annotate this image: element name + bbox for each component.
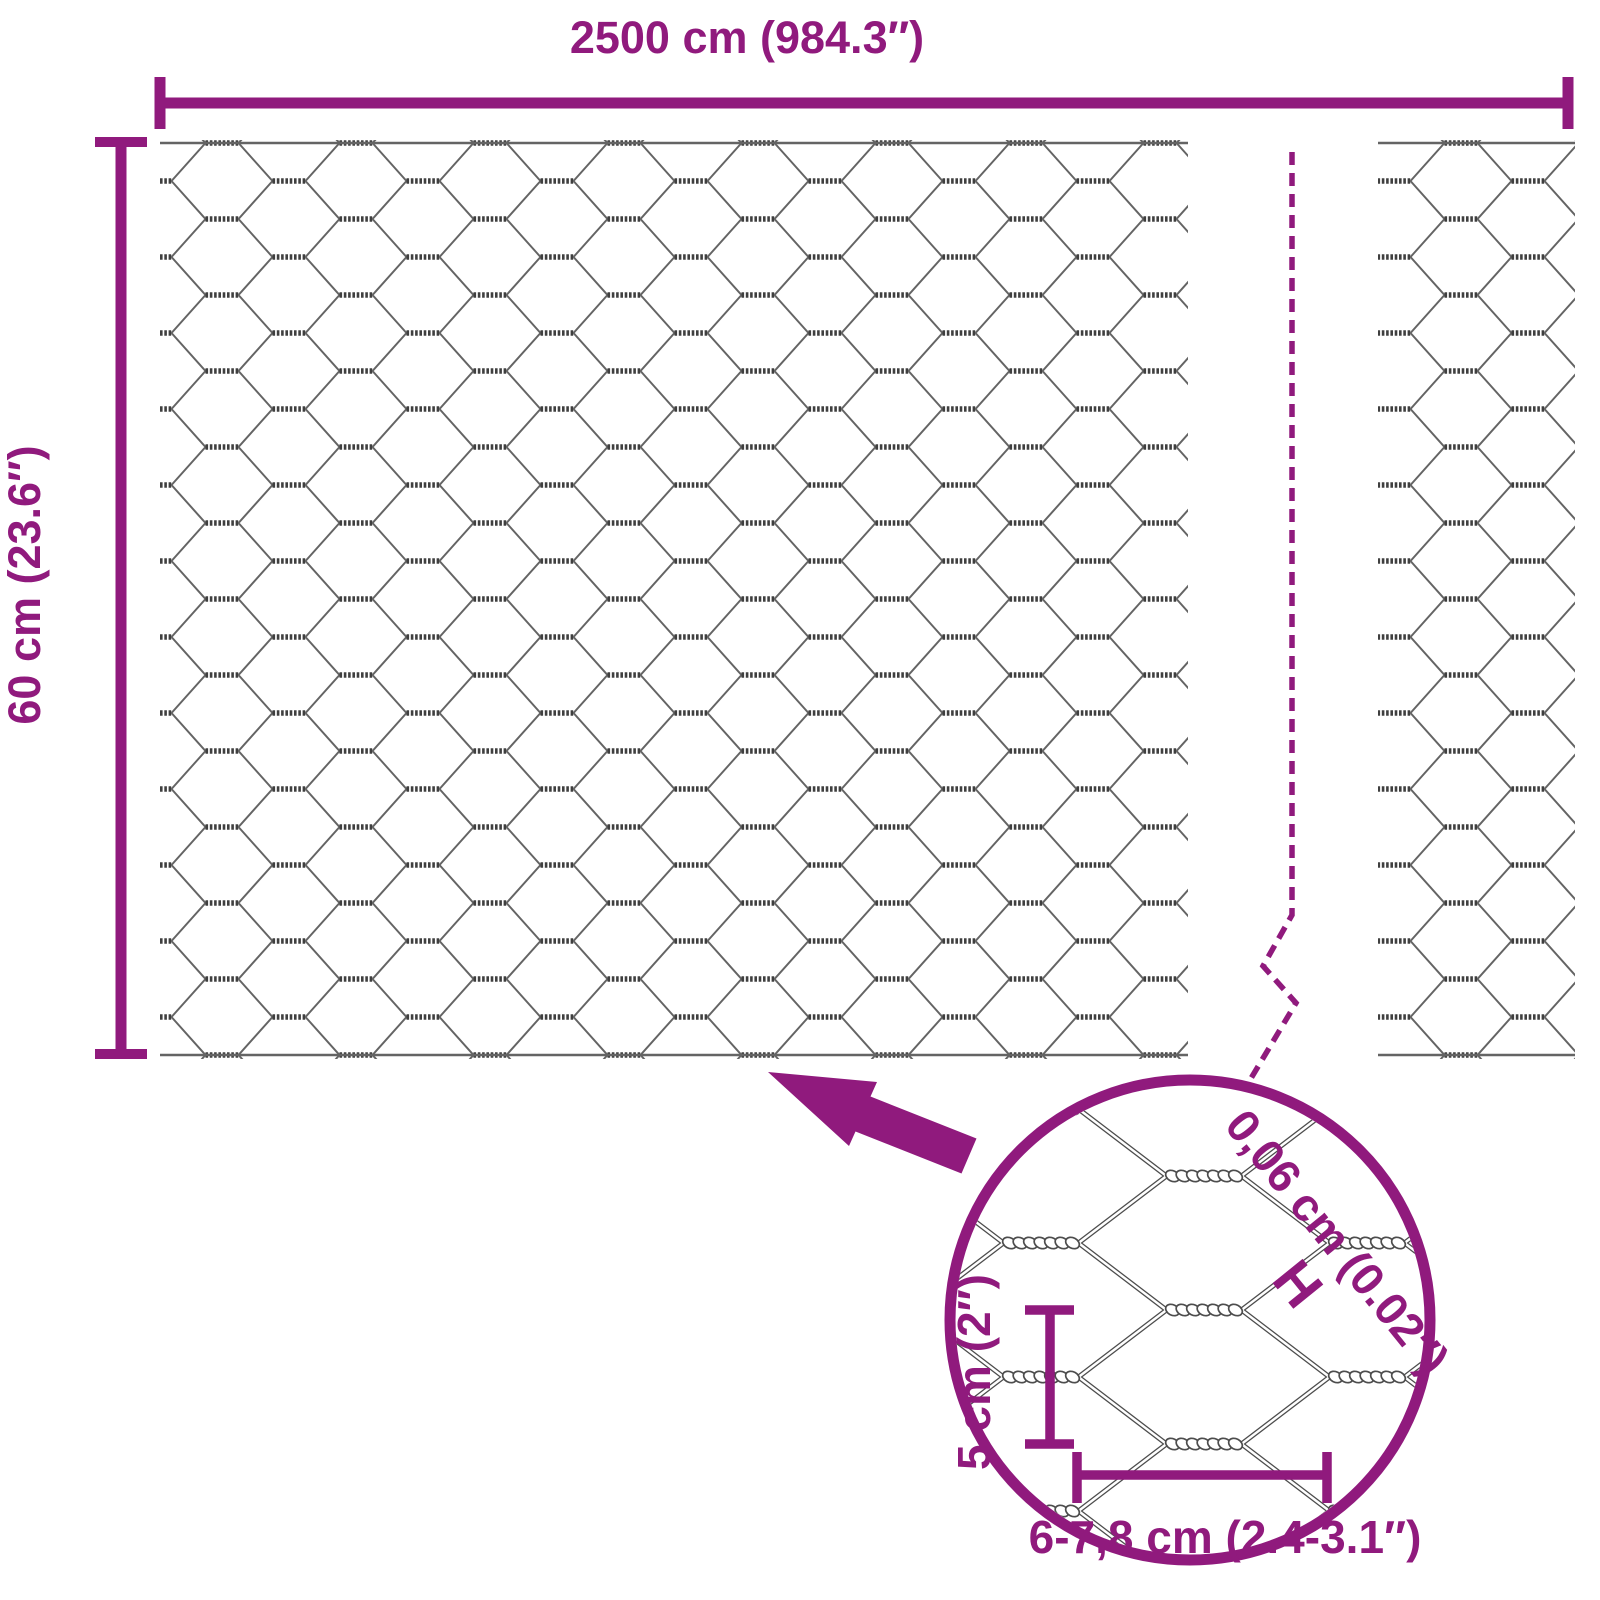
magnified-mesh: [956, 1086, 1425, 1555]
length-break-line: [1250, 152, 1296, 1080]
height-dimension: 60 cm (23.6″): [0, 142, 147, 1055]
mesh-height-label: 5 cm (2″): [948, 1274, 1000, 1470]
product-dimension-diagram: 2500 cm (984.3″) 60 cm (23.6″) 5 cm (2″)…: [0, 0, 1600, 1600]
hex-mesh-fill: [160, 140, 1188, 1059]
magnifier-detail: 5 cm (2″) 6-7,8 cm (2.4-3.1″) H 0,06 cm …: [948, 1080, 1460, 1563]
zoom-arrow: [768, 1072, 977, 1174]
mesh-panel-main: [160, 140, 1188, 1059]
hex-mesh-fill: [1378, 140, 1575, 1059]
height-dimension-label: 60 cm (23.6″): [0, 445, 50, 724]
width-dimension-label: 2500 cm (984.3″): [570, 12, 924, 63]
width-dimension: 2500 cm (984.3″): [160, 12, 1568, 129]
wire-mesh-diagram-canvas: 2500 cm (984.3″) 60 cm (23.6″) 5 cm (2″)…: [0, 0, 1600, 1600]
mesh-panel-right: [1378, 140, 1575, 1059]
mesh-width-label: 6-7,8 cm (2.4-3.1″): [1029, 1511, 1422, 1563]
